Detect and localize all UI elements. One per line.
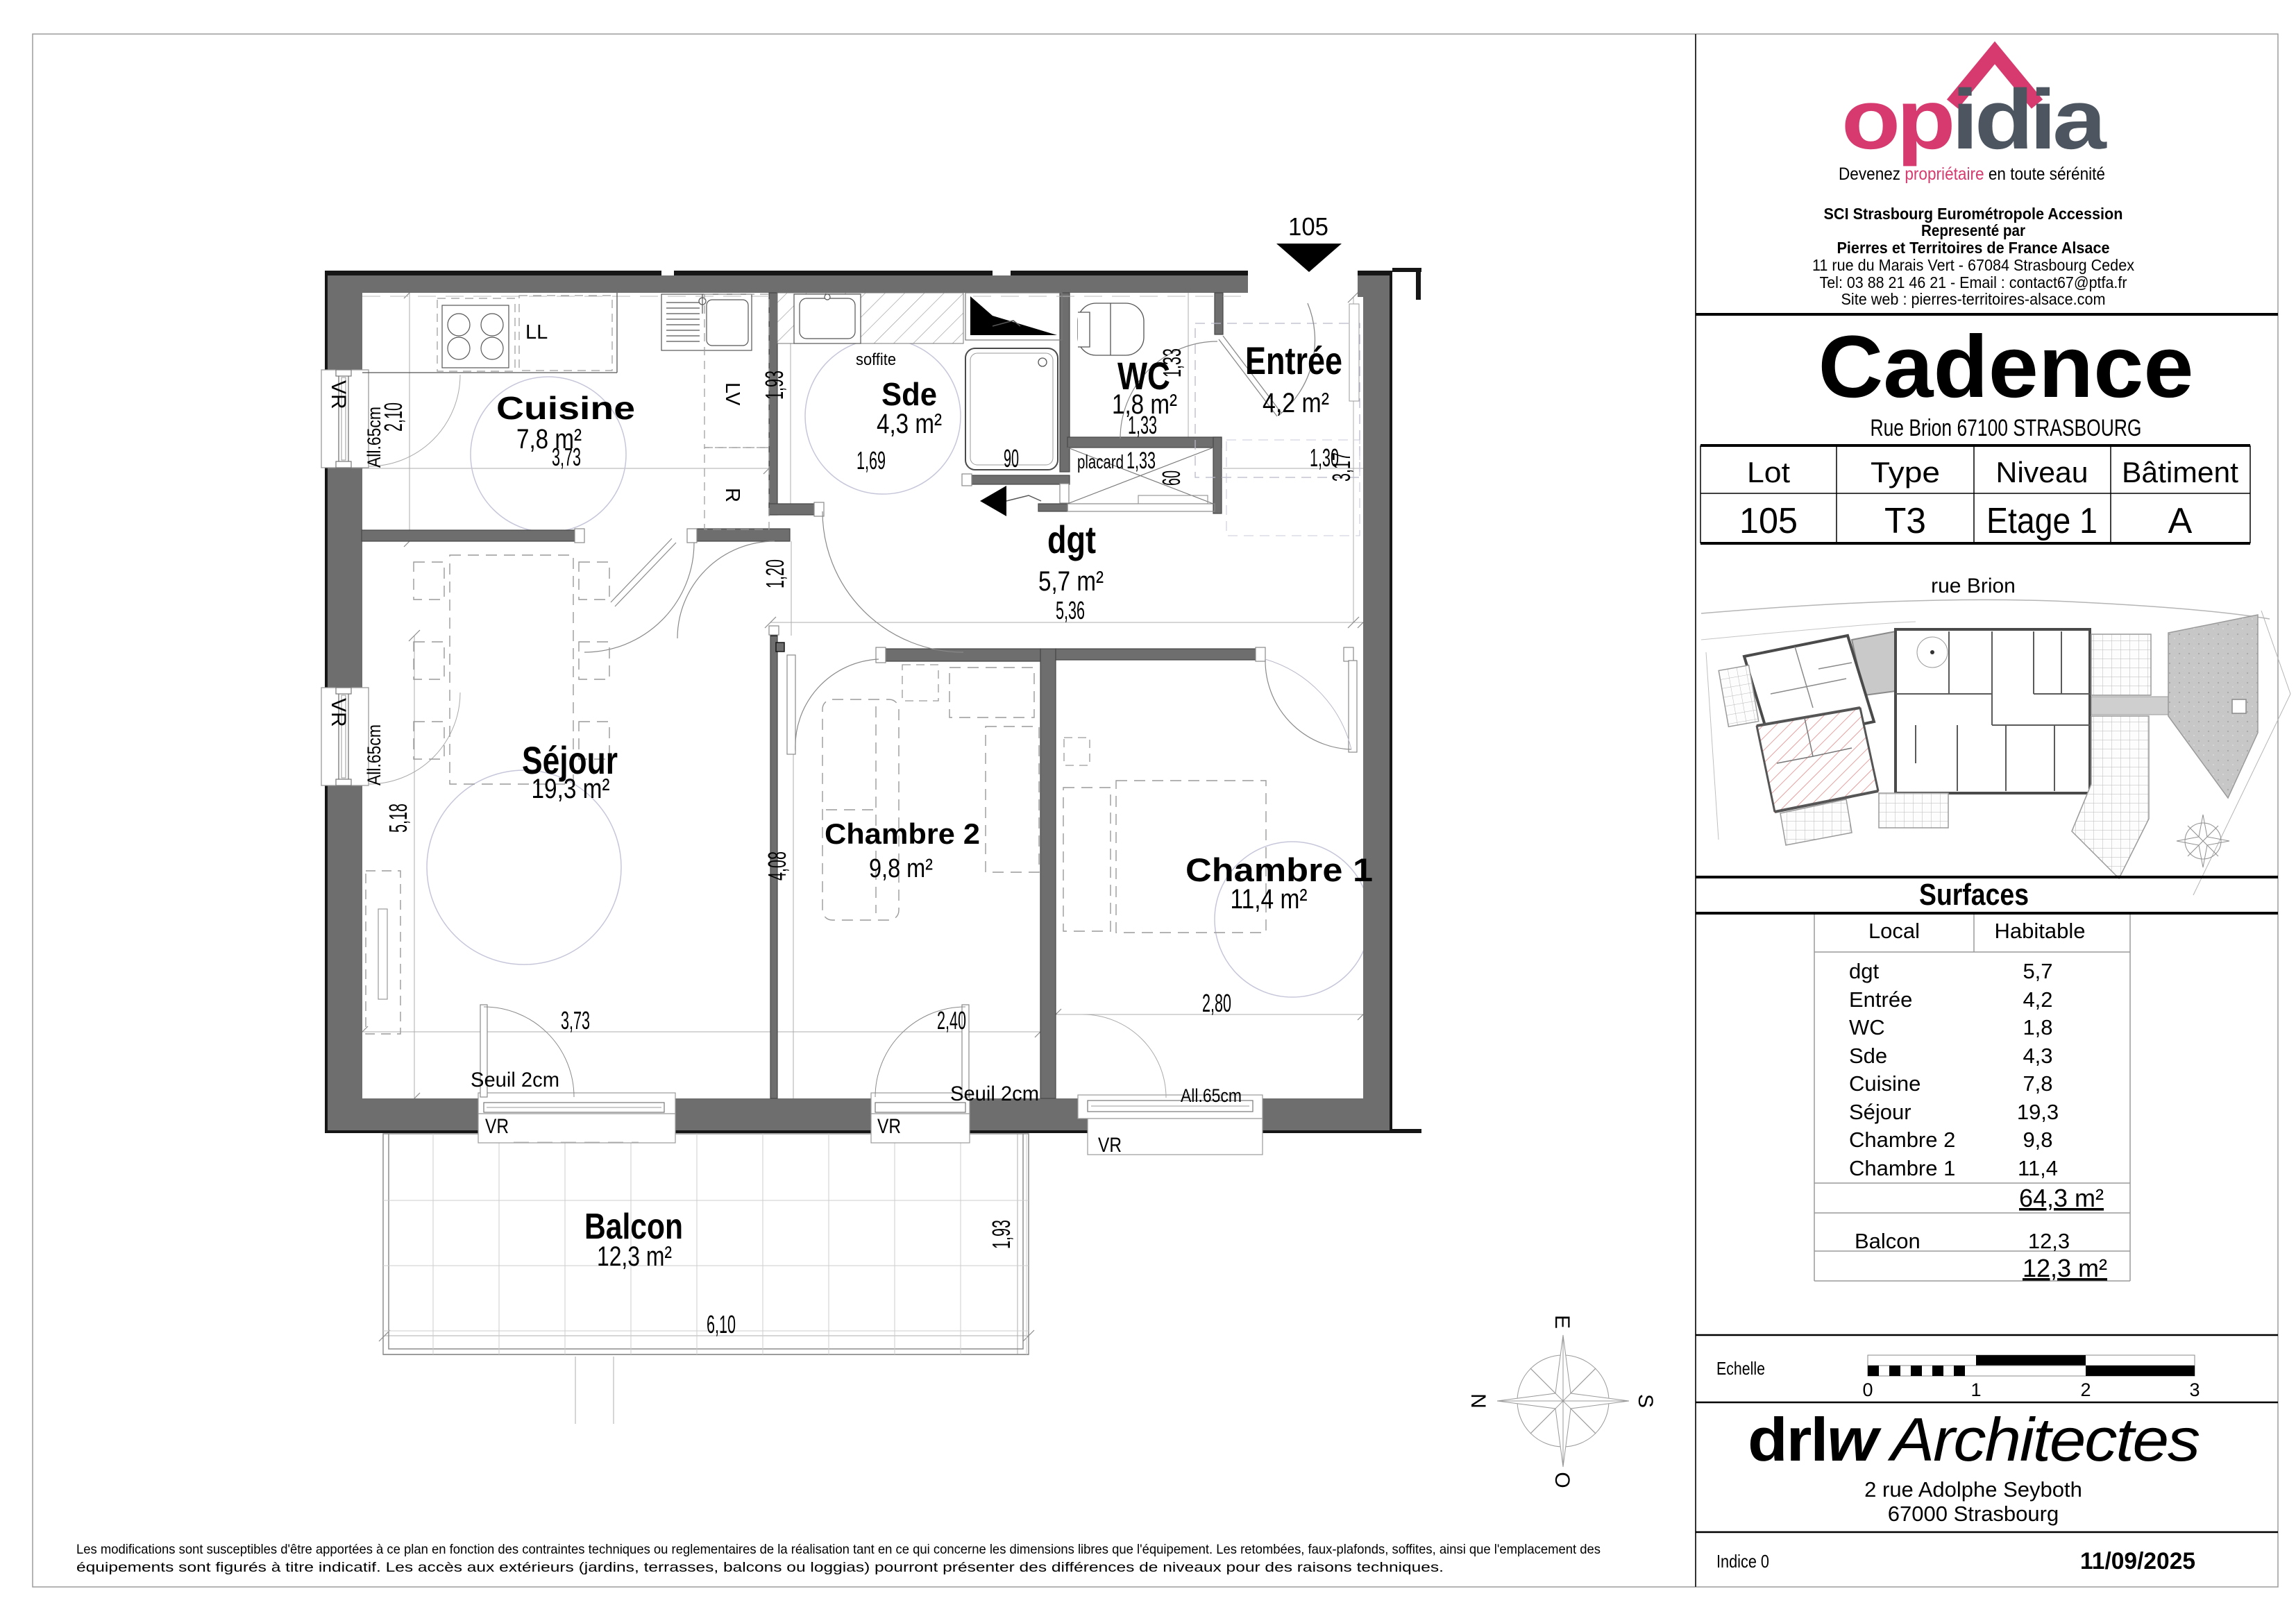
svg-text:4,2: 4,2 xyxy=(2023,987,2052,1012)
svg-text:3: 3 xyxy=(2189,1379,2200,1400)
svg-text:5,7 m²: 5,7 m² xyxy=(1038,566,1104,597)
svg-text:S: S xyxy=(1634,1394,1657,1408)
svg-text:Balcon: Balcon xyxy=(1855,1229,1921,1253)
svg-text:N: N xyxy=(1467,1393,1489,1409)
svg-text:12,3 m²: 12,3 m² xyxy=(2023,1254,2107,1282)
svg-text:Echelle: Echelle xyxy=(1716,1358,1765,1379)
svg-text:105: 105 xyxy=(1739,501,1798,541)
svg-text:drlw Architectes: drlw Architectes xyxy=(1748,1405,2200,1474)
svg-text:WC: WC xyxy=(1849,1015,1885,1039)
svg-text:9,8: 9,8 xyxy=(2023,1128,2052,1152)
svg-text:Entrée: Entrée xyxy=(1245,339,1342,382)
svg-text:6,10: 6,10 xyxy=(707,1310,736,1339)
svg-text:0: 0 xyxy=(1862,1379,1873,1400)
svg-text:Niveau: Niveau xyxy=(1996,456,2088,488)
svg-text:LV: LV xyxy=(721,382,743,406)
svg-text:Cuisine: Cuisine xyxy=(1849,1071,1921,1096)
svg-text:Chambre 1: Chambre 1 xyxy=(1185,851,1373,888)
svg-text:67000 Strasbourg: 67000 Strasbourg xyxy=(1888,1502,2059,1526)
svg-text:2: 2 xyxy=(2080,1379,2091,1400)
svg-text:soffite: soffite xyxy=(856,350,896,369)
svg-text:1,93: 1,93 xyxy=(760,371,788,400)
svg-text:1,20: 1,20 xyxy=(761,559,789,588)
svg-text:Chambre 2: Chambre 2 xyxy=(1849,1128,1955,1152)
svg-text:4,08: 4,08 xyxy=(763,851,791,881)
svg-text:Sde: Sde xyxy=(881,376,937,412)
svg-text:64,3 m²: 64,3 m² xyxy=(2019,1184,2104,1212)
svg-text:Les modifications sont suscept: Les modifications sont susceptibles d'êt… xyxy=(76,1542,1601,1557)
svg-text:dgt: dgt xyxy=(1849,959,1879,983)
svg-text:Devenez propriétaire en toute: Devenez propriétaire en toute sérénité xyxy=(1839,164,2105,184)
svg-text:3,73: 3,73 xyxy=(561,1006,590,1035)
svg-text:VR: VR xyxy=(1098,1134,1122,1157)
svg-text:1,8: 1,8 xyxy=(2023,1015,2052,1039)
svg-text:Chambre 2: Chambre 2 xyxy=(825,817,980,850)
svg-text:Rue Brion 67100 STRASBOURG: Rue Brion 67100 STRASBOURG xyxy=(1871,415,2142,441)
svg-text:11 rue du Marais Vert - 67084: 11 rue du Marais Vert - 67084 Strasbourg… xyxy=(1812,256,2134,274)
svg-text:Local: Local xyxy=(1868,919,1920,943)
svg-text:4,2 m²: 4,2 m² xyxy=(1263,388,1329,418)
svg-text:R: R xyxy=(721,488,743,502)
svg-text:Type: Type xyxy=(1871,456,1940,488)
svg-text:5,36: 5,36 xyxy=(1056,596,1085,624)
svg-text:Etage 1: Etage 1 xyxy=(1986,501,2097,541)
svg-text:12,3: 12,3 xyxy=(2028,1229,2070,1253)
svg-text:3,73: 3,73 xyxy=(552,443,581,471)
svg-text:Lot: Lot xyxy=(1747,456,1790,488)
svg-text:9,8 m²: 9,8 m² xyxy=(869,854,933,883)
svg-text:2,40: 2,40 xyxy=(937,1006,966,1035)
svg-text:19,3 m²: 19,3 m² xyxy=(532,774,610,804)
svg-text:11/09/2025: 11/09/2025 xyxy=(2080,1548,2195,1574)
svg-text:A: A xyxy=(2168,501,2193,541)
svg-text:1,33: 1,33 xyxy=(1128,411,1157,439)
svg-text:opidia: opidia xyxy=(1841,72,2107,167)
svg-text:Indice 0: Indice 0 xyxy=(1716,1551,1769,1572)
svg-text:VR: VR xyxy=(485,1115,509,1138)
svg-text:VR: VR xyxy=(877,1115,901,1138)
svg-text:Seuil 2cm: Seuil 2cm xyxy=(950,1082,1039,1105)
svg-text:Cuisine: Cuisine xyxy=(496,390,635,426)
svg-text:4,3: 4,3 xyxy=(2023,1044,2052,1068)
svg-text:Representé par: Representé par xyxy=(1921,221,2025,239)
svg-text:1: 1 xyxy=(1970,1379,1981,1400)
svg-text:équipements sont figurés à tit: équipements sont figurés à titre indicat… xyxy=(76,1560,1444,1575)
svg-text:1,69: 1,69 xyxy=(856,446,886,475)
svg-text:Seuil 2cm: Seuil 2cm xyxy=(471,1069,559,1091)
svg-text:4,3 m²: 4,3 m² xyxy=(877,409,942,439)
svg-text:1,33: 1,33 xyxy=(1126,448,1156,474)
svg-text:rue Brion: rue Brion xyxy=(1931,575,2016,597)
svg-text:T3: T3 xyxy=(1884,501,1926,541)
svg-text:5,7: 5,7 xyxy=(2023,959,2052,983)
svg-text:Pierres et Territoires de Fran: Pierres et Territoires de France Alsace xyxy=(1837,239,2110,257)
svg-text:SCI Strasbourg Eurométropole A: SCI Strasbourg Eurométropole Accession xyxy=(1824,205,2123,223)
svg-text:5,18: 5,18 xyxy=(384,804,412,833)
svg-text:VR: VR xyxy=(327,380,350,409)
svg-text:60: 60 xyxy=(1157,470,1185,486)
svg-text:2 rue Adolphe Seyboth: 2 rue Adolphe Seyboth xyxy=(1864,1477,2082,1502)
svg-text:O: O xyxy=(1551,1472,1573,1488)
svg-text:Tel: 03 88 21 46 21 - Email :: Tel: 03 88 21 46 21 - Email : contact67@… xyxy=(1820,273,2127,291)
svg-text:11,4 m²: 11,4 m² xyxy=(1231,884,1308,915)
svg-text:105: 105 xyxy=(1288,212,1328,241)
svg-text:Chambre 1: Chambre 1 xyxy=(1849,1156,1955,1180)
svg-text:12,3 m²: 12,3 m² xyxy=(597,1241,672,1272)
svg-text:19,3: 19,3 xyxy=(2017,1100,2059,1124)
svg-text:dgt: dgt xyxy=(1047,518,1096,561)
svg-text:Cadence: Cadence xyxy=(1818,317,2194,416)
svg-text:Séjour: Séjour xyxy=(1849,1100,1911,1124)
svg-text:Surfaces: Surfaces xyxy=(1919,878,2029,912)
svg-text:1,93: 1,93 xyxy=(987,1220,1015,1249)
svg-text:Habitable: Habitable xyxy=(1995,919,2086,943)
svg-text:3,17: 3,17 xyxy=(1327,452,1356,482)
svg-text:E: E xyxy=(1551,1315,1573,1329)
svg-text:placard: placard xyxy=(1077,451,1124,473)
svg-text:11,4: 11,4 xyxy=(2018,1156,2058,1180)
svg-text:Bâtiment: Bâtiment xyxy=(2122,456,2238,488)
svg-text:2,80: 2,80 xyxy=(1202,989,1231,1017)
svg-text:Site web : pierres-territoires: Site web : pierres-territoires-alsace.co… xyxy=(1841,290,2106,308)
svg-text:All.65cm: All.65cm xyxy=(1181,1085,1242,1106)
svg-text:All.65cm: All.65cm xyxy=(364,724,385,785)
svg-text:LL: LL xyxy=(525,321,548,343)
svg-text:Sde: Sde xyxy=(1849,1044,1887,1068)
svg-text:2,10: 2,10 xyxy=(379,402,407,432)
svg-text:1,33: 1,33 xyxy=(1158,348,1186,377)
svg-text:Entrée: Entrée xyxy=(1849,987,1912,1012)
svg-text:90: 90 xyxy=(1004,444,1019,473)
svg-text:7,8: 7,8 xyxy=(2023,1071,2052,1096)
svg-text:VR: VR xyxy=(327,698,350,727)
